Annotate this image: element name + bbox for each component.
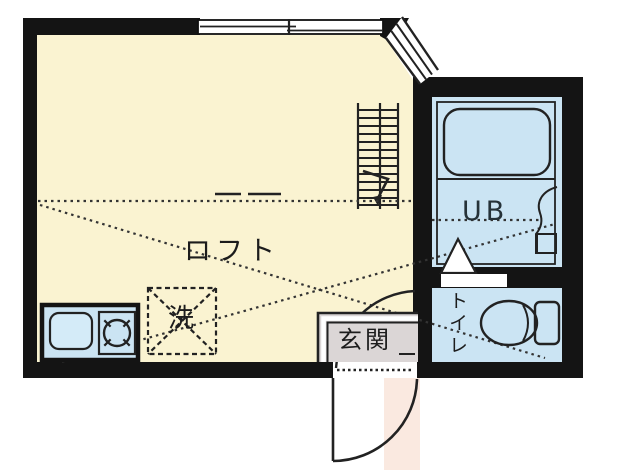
wall-right <box>562 77 583 378</box>
sliding-window <box>198 19 383 35</box>
label-unit-bath: UB <box>462 198 508 225</box>
kitchen-sink <box>50 313 92 349</box>
floor-plan-drawing <box>0 0 640 475</box>
floor-plan: ロフト 洗 UB 玄関 トイレ <box>0 0 640 475</box>
entrance-threshold <box>333 362 417 378</box>
ub-step <box>441 274 507 287</box>
unit-bath-floor <box>432 97 562 267</box>
label-entrance: 玄関 <box>338 328 392 352</box>
wall-left <box>23 18 37 378</box>
label-loft: ロフト <box>184 238 280 265</box>
wall-ub-top <box>413 77 583 97</box>
label-toilet: トイレ <box>447 291 466 357</box>
wall-bottom <box>23 362 583 378</box>
label-washing-machine: 洗 <box>168 306 194 332</box>
wall-top <box>23 18 200 35</box>
kitchen-counter <box>42 305 138 360</box>
